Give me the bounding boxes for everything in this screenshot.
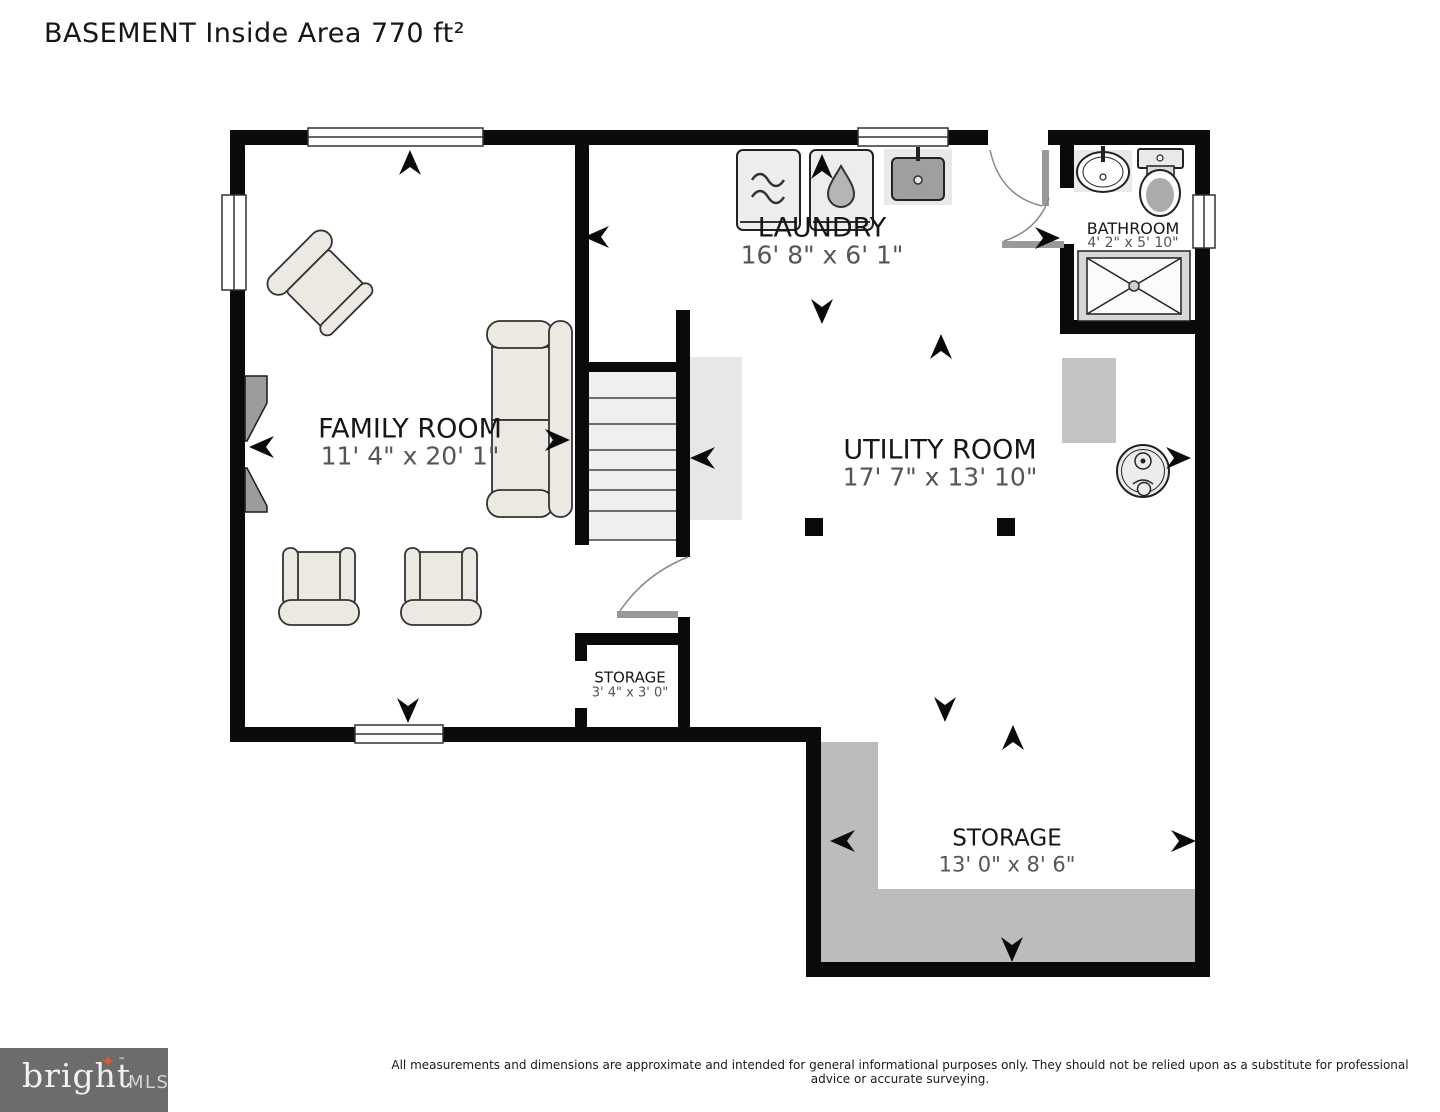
- shower: [1078, 251, 1190, 321]
- room-label-storage-closet: STORAGE: [594, 671, 665, 686]
- window-right-bathroom: [1193, 195, 1215, 248]
- water-heater: [1117, 445, 1169, 497]
- room-dims-bathroom: 4' 2" x 5' 10": [1087, 236, 1178, 250]
- arrow-up-icon: [1002, 725, 1024, 750]
- room-label-family: FAMILY ROOM: [318, 416, 502, 443]
- laundry-sink: [884, 147, 952, 205]
- bathroom-sink: [1074, 146, 1132, 192]
- support-post: [805, 518, 823, 536]
- brightmls-logo: bright ✦ ™ MLS: [0, 1048, 168, 1112]
- arrow-up-icon: [399, 150, 421, 175]
- window-left-family: [222, 195, 246, 290]
- floorplan-drawing: [0, 0, 1440, 1112]
- room-dims-family: 11' 4" x 20' 1": [321, 444, 500, 469]
- toilet: [1138, 149, 1183, 216]
- room-label-laundry: LAUNDRY: [758, 215, 886, 242]
- logo-mls-text: MLS: [128, 1072, 169, 1093]
- door-stairs: [617, 557, 688, 618]
- room-dims-storage-closet: 3' 4" x 3' 0": [592, 687, 668, 700]
- trademark-symbol: ™: [118, 1056, 126, 1065]
- armchair-right: [401, 548, 481, 625]
- support-post: [997, 518, 1015, 536]
- room-label-storage: STORAGE: [952, 828, 1062, 851]
- understair-floor: [690, 357, 742, 520]
- furnace: [1062, 358, 1116, 443]
- disclaimer-text: All measurements and dimensions are appr…: [390, 1058, 1410, 1086]
- arrow-right-icon: [1166, 447, 1191, 469]
- arrow-left-icon: [249, 436, 274, 458]
- floorplan-page: BASEMENT Inside Area 770 ft²: [0, 0, 1440, 1112]
- staircase: [589, 372, 676, 540]
- room-dims-laundry: 16' 8" x 6' 1": [741, 243, 904, 268]
- walls: [230, 130, 1210, 977]
- arrow-down-icon: [934, 697, 956, 722]
- door-laundry-exterior: [990, 150, 1049, 206]
- armchair-corner: [263, 226, 380, 343]
- window-top-laundry: [858, 128, 948, 146]
- room-dims-storage: 13' 0" x 8' 6": [939, 855, 1076, 876]
- arrow-right-icon: [1171, 830, 1196, 852]
- arrow-down-icon: [811, 299, 833, 324]
- room-label-utility: UTILITY ROOM: [843, 437, 1036, 464]
- window-bottom-family: [355, 725, 443, 743]
- door-bathroom: [1002, 198, 1064, 248]
- arrow-down-icon: [397, 698, 419, 723]
- sparkle-icon: ✦: [101, 1052, 115, 1072]
- armchair-left: [279, 548, 359, 625]
- room-dims-utility: 17' 7" x 13' 10": [843, 465, 1038, 490]
- arrow-up-icon: [930, 334, 952, 359]
- window-top-family: [308, 128, 483, 146]
